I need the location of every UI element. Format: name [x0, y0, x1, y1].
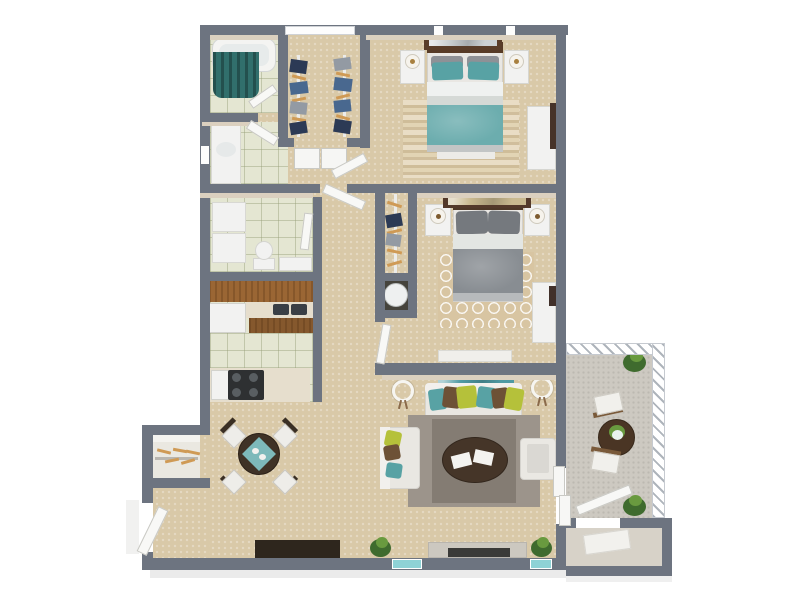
lamp-center [436, 214, 441, 219]
wall [408, 193, 417, 318]
clothes-item [385, 233, 402, 247]
bed1-bench [437, 152, 495, 159]
bed2-bench [438, 350, 512, 362]
pillow [456, 385, 478, 409]
bed1-pillow [468, 61, 500, 80]
tv-console-dining [255, 540, 340, 558]
bed1-pillow [432, 61, 464, 80]
wall [556, 25, 566, 468]
clothes-item [333, 77, 352, 92]
bed1-blanket [427, 105, 503, 145]
toilet-bowl [255, 241, 273, 260]
bed2-sheet [453, 234, 523, 249]
bed2-blanket [453, 249, 523, 293]
water-heater [384, 283, 408, 307]
tv-bed2 [549, 286, 556, 306]
dishwasher [211, 370, 229, 400]
closet-door [294, 148, 320, 169]
wall-face [200, 193, 313, 198]
pillow [503, 387, 525, 412]
plan-shadow [150, 570, 570, 578]
wall-wreath [392, 380, 414, 402]
wall [278, 35, 288, 147]
wall [382, 273, 408, 281]
wall [375, 363, 566, 375]
wall [360, 35, 370, 148]
wall [375, 310, 417, 318]
wall [142, 425, 153, 503]
clothes-item [289, 81, 308, 95]
entry-closet-shelf [153, 435, 200, 442]
entry-step [126, 500, 139, 554]
kitchen-cabinet [249, 318, 313, 333]
wall-face [210, 35, 278, 40]
cup [259, 454, 266, 460]
window [434, 26, 443, 35]
burner [249, 388, 258, 397]
lamp-center [535, 214, 540, 219]
wall-face [382, 375, 556, 380]
clothes-item [333, 119, 352, 134]
plant-leaf [376, 537, 388, 548]
burner [232, 373, 241, 382]
bath2-vanity [279, 257, 312, 271]
plant-leaf [537, 537, 549, 548]
window-sill-teal [392, 559, 422, 569]
wall [142, 478, 210, 488]
clothes-item [289, 101, 307, 115]
clothes-item [333, 99, 351, 113]
wall-wreath [531, 377, 553, 399]
bath2-cabinet [212, 202, 246, 232]
bed2-pillow [456, 210, 489, 234]
cup [252, 448, 259, 454]
wall [313, 197, 322, 402]
plan-shadow [566, 576, 672, 582]
vanity-sink [216, 142, 236, 157]
shower-curtain [213, 52, 259, 98]
sink-basin [273, 304, 289, 315]
burner [249, 373, 258, 382]
burner [232, 388, 241, 397]
sliding-door [559, 495, 571, 526]
floorplan [0, 0, 800, 600]
patio-cup [612, 430, 623, 440]
sliding-door [553, 466, 565, 497]
wall [375, 193, 385, 322]
window-sill-teal [530, 559, 552, 569]
pillow [385, 462, 403, 479]
fridge [206, 303, 246, 333]
breakfast-bar [203, 279, 318, 302]
window [285, 26, 355, 35]
wall-face [366, 35, 556, 40]
bed1-foot [427, 145, 503, 152]
wall [347, 184, 566, 193]
lamp-center [410, 59, 415, 64]
bed2-pillow [488, 210, 521, 234]
bed1-sheet [427, 96, 503, 105]
plant-leaf [629, 495, 642, 506]
clothes-item [385, 213, 403, 229]
clothes-item [289, 59, 308, 74]
patio-railing [652, 343, 665, 518]
patio-railing [566, 343, 665, 355]
clothes-item [333, 57, 352, 71]
wall [278, 138, 294, 147]
wall-face [417, 193, 556, 198]
sink-basin [291, 304, 307, 315]
lamp-center [514, 59, 519, 64]
wall [142, 558, 566, 570]
tv [448, 548, 510, 557]
pillow [383, 444, 401, 462]
wall [200, 25, 210, 435]
bed2-foot [453, 293, 523, 301]
window [201, 146, 209, 164]
bath2-cabinet [212, 233, 246, 263]
armchair-seat [527, 444, 549, 473]
bed1-sheet [427, 82, 503, 96]
wall [566, 566, 672, 576]
wall [200, 272, 313, 281]
wall [200, 184, 320, 193]
window [506, 26, 515, 35]
